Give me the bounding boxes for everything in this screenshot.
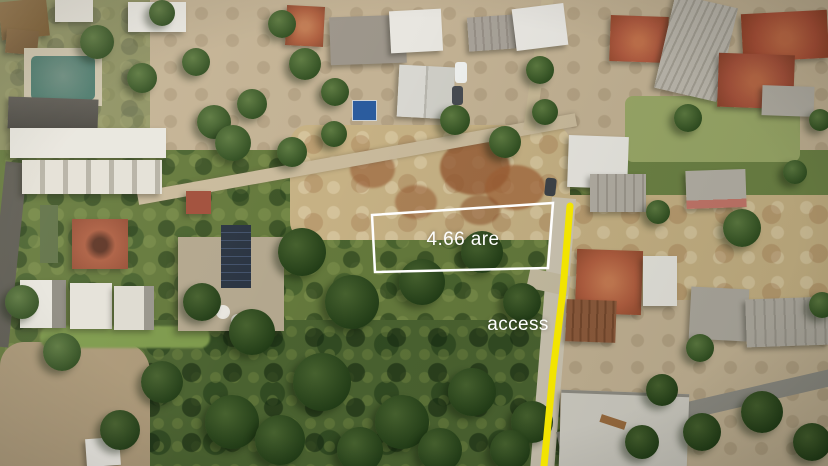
swimming-pool bbox=[31, 56, 95, 100]
plot-area-label: 4.66 are bbox=[427, 229, 500, 251]
tree bbox=[489, 126, 521, 158]
tree bbox=[448, 368, 496, 416]
palm-tree bbox=[741, 391, 783, 433]
palm-tree bbox=[625, 425, 659, 459]
gray-roof bbox=[467, 14, 517, 51]
solar-panel-array bbox=[221, 225, 251, 288]
dark-roof bbox=[7, 96, 98, 131]
tree bbox=[237, 89, 267, 119]
tree bbox=[674, 104, 702, 132]
tree bbox=[141, 361, 183, 403]
dark-car bbox=[544, 177, 557, 196]
gray-roof-red-edge bbox=[685, 169, 746, 209]
palm-tree bbox=[683, 413, 721, 451]
tree bbox=[490, 430, 530, 466]
tree bbox=[100, 410, 140, 450]
access-label: access bbox=[487, 314, 549, 336]
tree bbox=[526, 56, 554, 84]
tree bbox=[809, 292, 828, 318]
blue-pool bbox=[352, 100, 377, 121]
tree bbox=[532, 99, 558, 125]
tree bbox=[809, 109, 828, 131]
tree bbox=[646, 200, 670, 224]
tree bbox=[293, 353, 351, 411]
white-roof bbox=[55, 0, 93, 22]
tree bbox=[418, 428, 462, 466]
terracotta-pyramid-roof bbox=[72, 219, 128, 269]
white-roof bbox=[512, 3, 569, 51]
dry-bush-patch bbox=[460, 195, 500, 225]
rusty-roof bbox=[565, 299, 616, 343]
palm-tree bbox=[793, 423, 828, 461]
red-tile-roof bbox=[609, 15, 669, 63]
tree bbox=[686, 334, 714, 362]
red-roof-small bbox=[186, 191, 211, 214]
tree bbox=[321, 78, 349, 106]
tree bbox=[80, 25, 114, 59]
tree bbox=[43, 333, 81, 371]
tree bbox=[723, 209, 761, 247]
tree bbox=[325, 275, 379, 329]
tree bbox=[205, 395, 259, 449]
tree bbox=[321, 121, 347, 147]
dark-car bbox=[452, 86, 463, 105]
tree bbox=[215, 125, 251, 161]
tree bbox=[277, 137, 307, 167]
white-roof bbox=[70, 283, 112, 329]
tree bbox=[278, 228, 326, 276]
white-building-row bbox=[22, 160, 162, 194]
white-roof bbox=[389, 9, 443, 54]
tree bbox=[5, 285, 39, 319]
tree bbox=[127, 63, 157, 93]
tree bbox=[783, 160, 807, 184]
white-roof bbox=[114, 286, 154, 330]
tree bbox=[337, 427, 383, 466]
tree bbox=[399, 259, 445, 305]
dry-bush-patch bbox=[395, 185, 437, 219]
tree bbox=[268, 10, 296, 38]
tree bbox=[440, 105, 470, 135]
gray-roof bbox=[590, 174, 646, 212]
aerial-land-photo: 4.66 are access bbox=[0, 0, 828, 466]
white-roof bbox=[643, 256, 677, 306]
white-car bbox=[455, 62, 467, 83]
tree bbox=[149, 0, 175, 26]
tree bbox=[255, 415, 305, 465]
lap-pool bbox=[40, 205, 58, 263]
tree bbox=[289, 48, 321, 80]
tree bbox=[646, 374, 678, 406]
gray-roof bbox=[761, 85, 814, 117]
tree bbox=[229, 309, 275, 355]
tree bbox=[183, 283, 221, 321]
tree bbox=[182, 48, 210, 76]
white-building-row bbox=[10, 128, 166, 158]
